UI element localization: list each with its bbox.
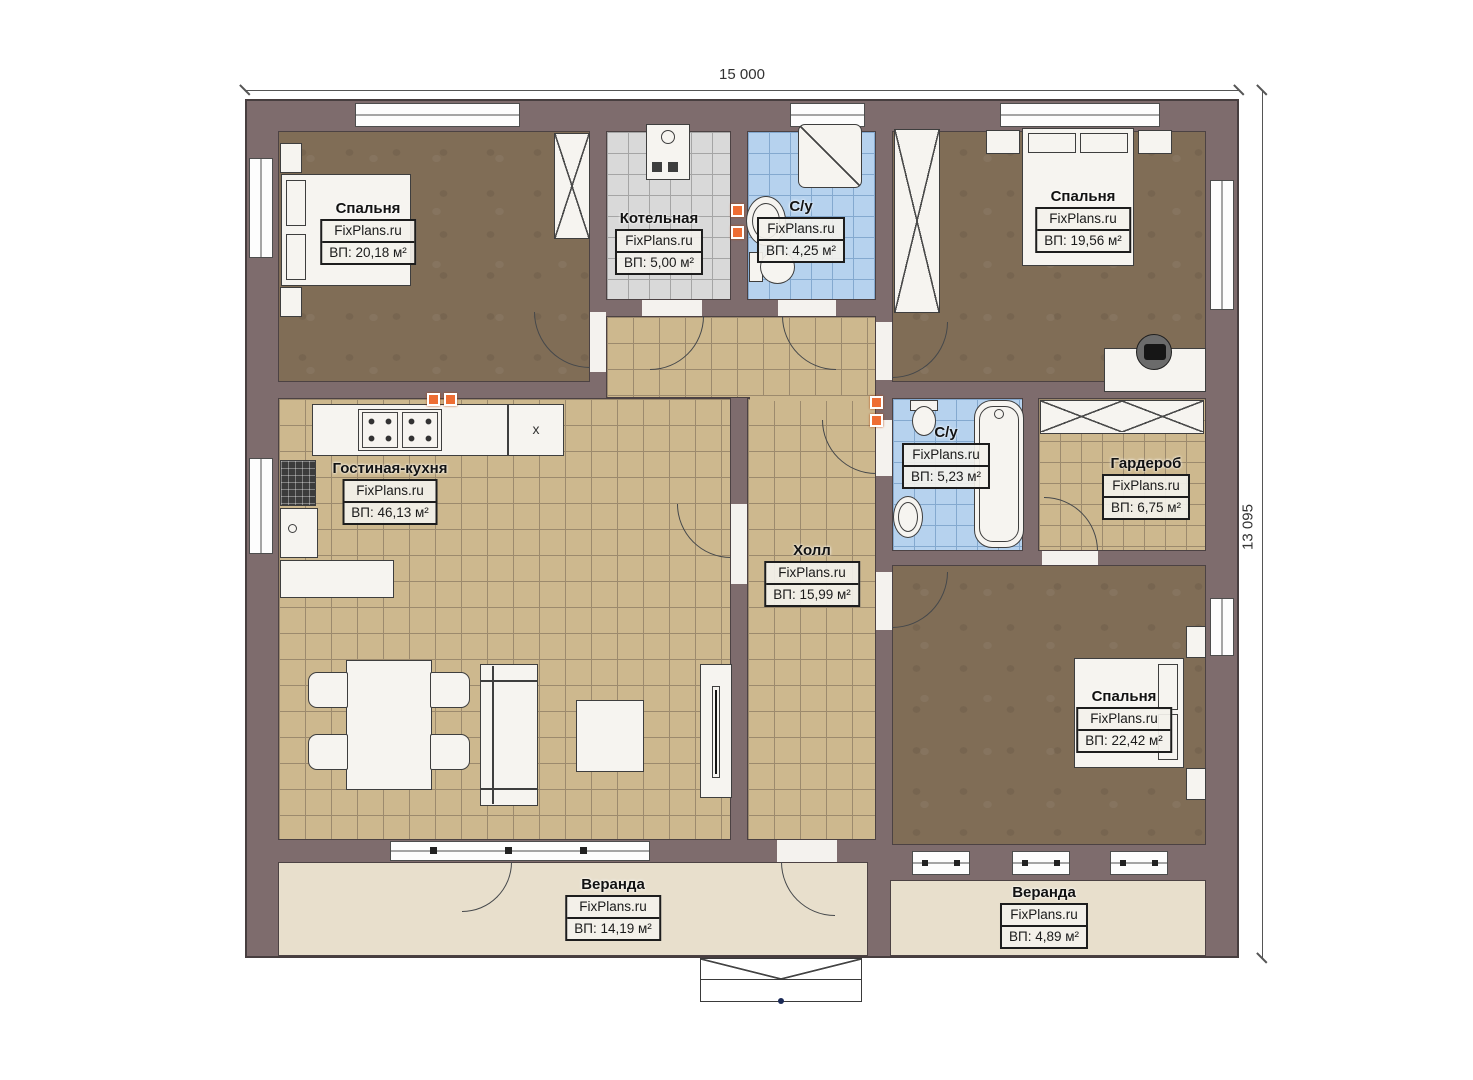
pillow [286, 234, 306, 280]
sofa [480, 664, 538, 806]
dimension-line-width [245, 90, 1239, 91]
room-brand: FixPlans.ru [1078, 709, 1170, 729]
sofa-armrest-line [481, 680, 537, 682]
label-bedroom-3: Спальня FixPlans.ru ВП: 22,42 м² [1076, 688, 1172, 753]
room-brand: FixPlans.ru [1104, 476, 1188, 496]
wardrobe-x-panel [1041, 401, 1122, 432]
door-opening [778, 300, 836, 316]
room-name: Котельная [615, 210, 703, 227]
label-boiler-room: Котельная FixPlans.ru ВП: 5,00 м² [615, 210, 703, 275]
room-brand: FixPlans.ru [1037, 209, 1129, 229]
window-mullion [922, 860, 928, 866]
boiler-control-icon [668, 162, 678, 172]
window-mullion [1120, 860, 1126, 866]
window-mullion [1054, 860, 1060, 866]
entrance-steps [700, 958, 862, 1002]
window-mullion [1152, 860, 1158, 866]
pillow [1080, 133, 1128, 153]
label-bedroom-1: Спальня FixPlans.ru ВП: 20,18 м² [320, 200, 416, 265]
room-area: ВП: 19,56 м² [1037, 229, 1129, 251]
room-brand: FixPlans.ru [766, 563, 858, 583]
room-area: ВП: 22,42 м² [1078, 729, 1170, 751]
window [355, 103, 520, 127]
window [249, 458, 273, 554]
room-name: Спальня [320, 200, 416, 217]
room-brand: FixPlans.ru [759, 219, 843, 239]
window [912, 851, 970, 875]
nightstand [986, 130, 1020, 154]
window-mullion [580, 847, 587, 854]
vent-marker [731, 204, 744, 217]
door-opening [876, 572, 892, 630]
door-opening [876, 420, 892, 476]
vent-marker [870, 396, 883, 409]
office-chair-seat [1144, 344, 1166, 360]
pillow [286, 180, 306, 226]
door-opening [777, 840, 837, 862]
nightstand [1186, 768, 1206, 800]
room-name: С/у [902, 424, 990, 441]
door-opening [642, 300, 702, 316]
pillow [1028, 133, 1076, 153]
vent-marker [870, 414, 883, 427]
label-wardrobe: Гардероб FixPlans.ru ВП: 6,75 м² [1102, 455, 1190, 520]
kitchen-appliance [280, 460, 316, 506]
fridge-mark: x [533, 421, 540, 437]
room-area: ВП: 4,89 м² [1002, 925, 1086, 947]
nightstand [1186, 626, 1206, 658]
shower-cabin [798, 124, 862, 188]
room-name: С/у [757, 198, 845, 215]
closet-x-cabinet [894, 129, 940, 313]
room-brand: FixPlans.ru [322, 221, 414, 241]
kitchen-island [280, 560, 394, 598]
door-opening [876, 322, 892, 380]
room-brand: FixPlans.ru [344, 481, 436, 501]
label-living-kitchen: Гостиная-кухня FixPlans.ru ВП: 46,13 м² [333, 460, 448, 525]
label-hall: Холл FixPlans.ru ВП: 15,99 м² [764, 542, 860, 607]
stove-burners [402, 412, 438, 448]
tv-screen-line [715, 690, 717, 774]
window [1110, 851, 1168, 875]
room-brand: FixPlans.ru [567, 897, 659, 917]
room-name: Гардероб [1102, 455, 1190, 472]
fridge: x [508, 404, 564, 456]
room-name: Спальня [1076, 688, 1172, 705]
sliding-door-window [390, 841, 650, 861]
sofa-back-line [492, 666, 494, 804]
window-mullion [954, 860, 960, 866]
room-area: ВП: 14,19 м² [567, 917, 659, 939]
room-name: Веранда [1000, 884, 1088, 901]
label-bedroom-2: Спальня FixPlans.ru ВП: 19,56 м² [1035, 188, 1131, 253]
door-opening [731, 504, 747, 584]
window [249, 158, 273, 258]
floor-hall-join [750, 396, 873, 401]
entrance-marker-dot [778, 998, 784, 1004]
room-brand: FixPlans.ru [617, 231, 701, 251]
room-area: ВП: 15,99 м² [766, 583, 858, 605]
label-bathroom-1: С/у FixPlans.ru ВП: 4,25 м² [757, 198, 845, 263]
window-mullion [1022, 860, 1028, 866]
room-name: Холл [764, 542, 860, 559]
chair [308, 672, 348, 708]
room-name: Веранда [565, 876, 661, 893]
chair [430, 672, 470, 708]
window [1210, 180, 1234, 310]
room-area: ВП: 5,23 м² [904, 465, 988, 487]
label-veranda-1: Веранда FixPlans.ru ВП: 14,19 м² [565, 876, 661, 941]
dimension-line-height [1262, 90, 1263, 958]
vent-marker [444, 393, 457, 406]
label-veranda-2: Веранда FixPlans.ru ВП: 4,89 м² [1000, 884, 1088, 949]
floor-plan: 15 000 13 095 [0, 0, 1473, 1080]
boiler-burner-icon [661, 130, 675, 144]
chair [430, 734, 470, 770]
dimension-width-label: 15 000 [719, 66, 765, 83]
window [1000, 103, 1160, 127]
room-area: ВП: 4,25 м² [759, 239, 843, 261]
wardrobe-x-panel [1122, 401, 1203, 432]
window [1012, 851, 1070, 875]
entrance-step-upper [701, 959, 861, 980]
chair [308, 734, 348, 770]
sofa-armrest-line [481, 788, 537, 790]
label-bathroom-2: С/у FixPlans.ru ВП: 5,23 м² [902, 424, 990, 489]
room-area: ВП: 5,00 м² [617, 251, 701, 273]
nightstand [1138, 130, 1172, 154]
room-name: Гостиная-кухня [333, 460, 448, 477]
dimension-height-label: 13 095 [1240, 504, 1257, 550]
window-mullion [505, 847, 512, 854]
coffee-table [576, 700, 644, 772]
room-area: ВП: 46,13 м² [344, 501, 436, 523]
kitchen-sink [280, 508, 318, 558]
nightstand [280, 287, 302, 317]
faucet-icon [288, 524, 297, 533]
sink-basin [898, 502, 918, 532]
door-opening [1042, 551, 1098, 565]
bathtub-drain [994, 409, 1004, 419]
vent-marker [427, 393, 440, 406]
window [1210, 598, 1234, 656]
room-area: ВП: 6,75 м² [1104, 496, 1188, 518]
closet-x-cabinet [554, 133, 590, 239]
dining-table [346, 660, 432, 790]
door-opening [590, 312, 606, 372]
boiler-control-icon [652, 162, 662, 172]
window-mullion [430, 847, 437, 854]
room-name: Спальня [1035, 188, 1131, 205]
nightstand [280, 143, 302, 173]
vent-marker [731, 226, 744, 239]
stove-burners [362, 412, 398, 448]
room-brand: FixPlans.ru [904, 445, 988, 465]
room-area: ВП: 20,18 м² [322, 241, 414, 263]
room-brand: FixPlans.ru [1002, 905, 1086, 925]
